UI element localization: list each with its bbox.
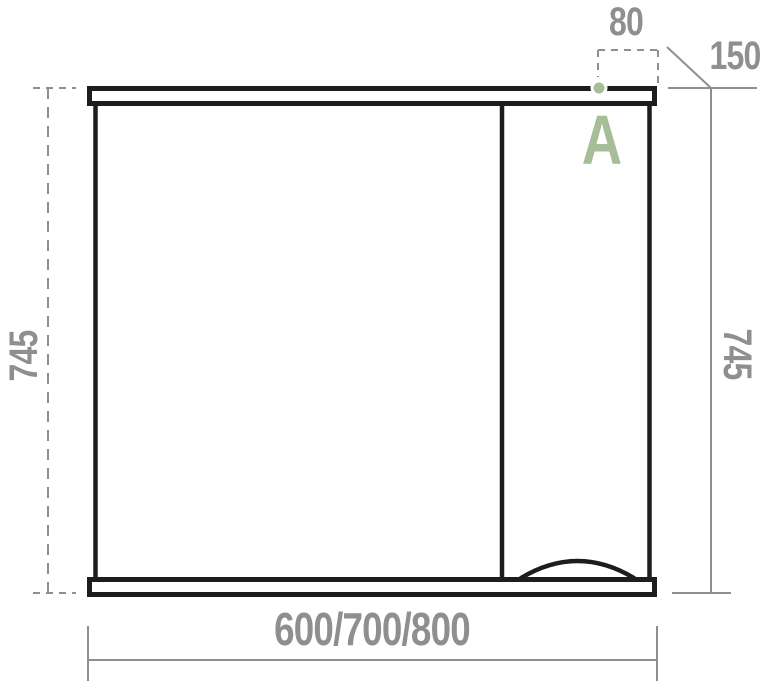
dim-label-height-right: 745: [717, 329, 757, 380]
door-curve-detail: [521, 561, 634, 578]
dim-label-height-left: 745: [4, 331, 44, 382]
cabinet-top-panel: [90, 89, 655, 104]
dim-label-depth: 150: [710, 36, 761, 76]
point-a-label: A: [582, 105, 622, 175]
dim-top-offset-lines: [598, 50, 658, 84]
dim-depth-leader-line: [667, 47, 711, 88]
dimension-drawing-canvas: 80 150 745 745 600/700/800 A: [0, 0, 762, 682]
cabinet-bottom-panel: [90, 580, 655, 595]
cabinet-outline: [90, 89, 655, 595]
dim-label-top-offset: 80: [609, 2, 643, 42]
dim-label-width-options: 600/700/800: [274, 606, 470, 652]
point-a-marker-dot: [592, 81, 606, 95]
drawing-linework: [0, 0, 762, 682]
dim-height-right-lines: [667, 47, 757, 593]
